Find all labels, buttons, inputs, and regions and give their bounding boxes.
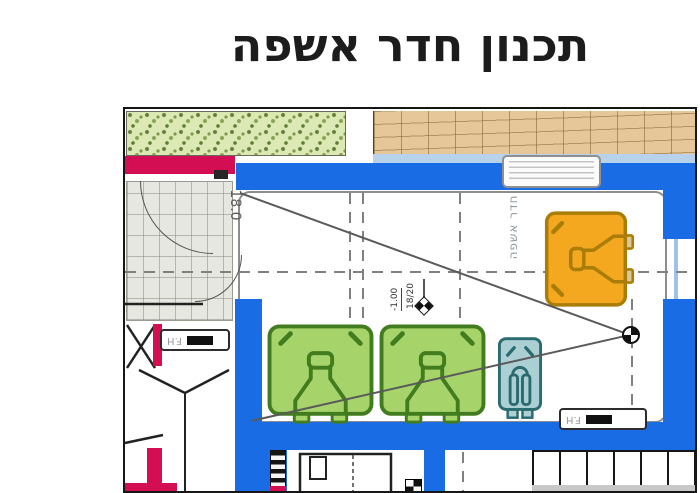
page-title: תכנון חדר אשפה	[130, 18, 690, 72]
fire-hose-left-label: F.H	[167, 335, 182, 346]
ladder-symbol	[270, 450, 286, 488]
floor-plan: 18.0 F.H F.H	[123, 107, 697, 493]
ramp-ribbed-area	[532, 450, 697, 493]
room-label: חדר אשפה	[506, 182, 520, 272]
wall-right-lower	[663, 299, 697, 450]
fire-hose-cabinet-left: F.H	[160, 329, 230, 351]
wheelie-bin-orange	[545, 205, 635, 312]
door-leaf	[214, 170, 228, 179]
grid-dash-vertical-5	[462, 452, 464, 493]
fire-hose-cabinet-right: F.H	[559, 408, 647, 430]
pavement-tiles	[373, 111, 697, 160]
small-bin-teal	[495, 337, 545, 421]
symbol-checker-icon	[405, 479, 422, 493]
wheelie-bin-green-1	[267, 324, 374, 424]
fire-hose-right-label: F.H	[566, 414, 581, 425]
grid-dash-vertical-4	[631, 299, 633, 422]
level-fraction: 18/20	[406, 283, 416, 309]
wall-stub-mid	[424, 422, 445, 493]
door-swing-arc-2	[195, 255, 243, 303]
wheelie-bin-green-2	[379, 324, 486, 424]
cabinet-bar-icon	[586, 415, 612, 424]
louver-icon	[509, 161, 594, 182]
cabinet-bar-icon	[187, 336, 213, 345]
level-value: -1.00	[390, 288, 402, 311]
wall-right-upper	[663, 163, 697, 239]
ramp-band	[532, 485, 697, 493]
doorframe-linework	[295, 450, 395, 493]
ladder-tip	[270, 486, 286, 493]
wall-top	[236, 163, 697, 190]
slide: תכנון חדר אשפה 18.0	[0, 0, 700, 493]
door-swing-arc-1	[139, 181, 213, 255]
door-jamb-line	[674, 239, 678, 299]
vegetation-area	[126, 111, 346, 156]
floor-drain-icon	[622, 326, 640, 344]
entrance-dim-label: 18.0	[227, 183, 243, 227]
